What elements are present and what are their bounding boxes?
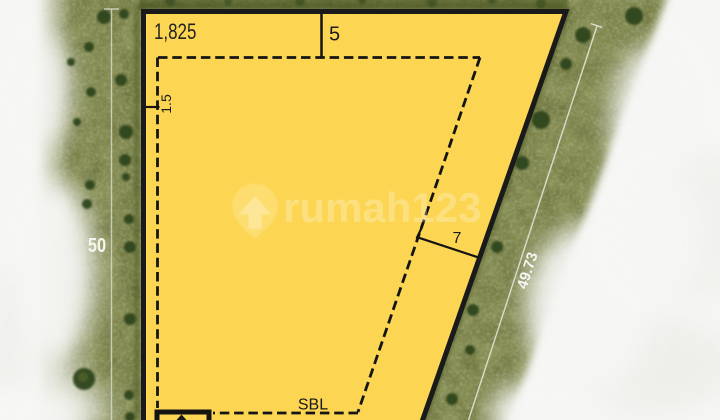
svg-text:rumah123: rumah123 <box>283 184 481 231</box>
svg-text:SBL: SBL <box>298 397 328 414</box>
svg-text:5: 5 <box>329 24 340 46</box>
svg-text:1.5: 1.5 <box>158 94 174 114</box>
svg-text:50: 50 <box>88 233 106 256</box>
svg-text:1,825: 1,825 <box>154 20 196 45</box>
svg-text:7: 7 <box>453 230 462 247</box>
